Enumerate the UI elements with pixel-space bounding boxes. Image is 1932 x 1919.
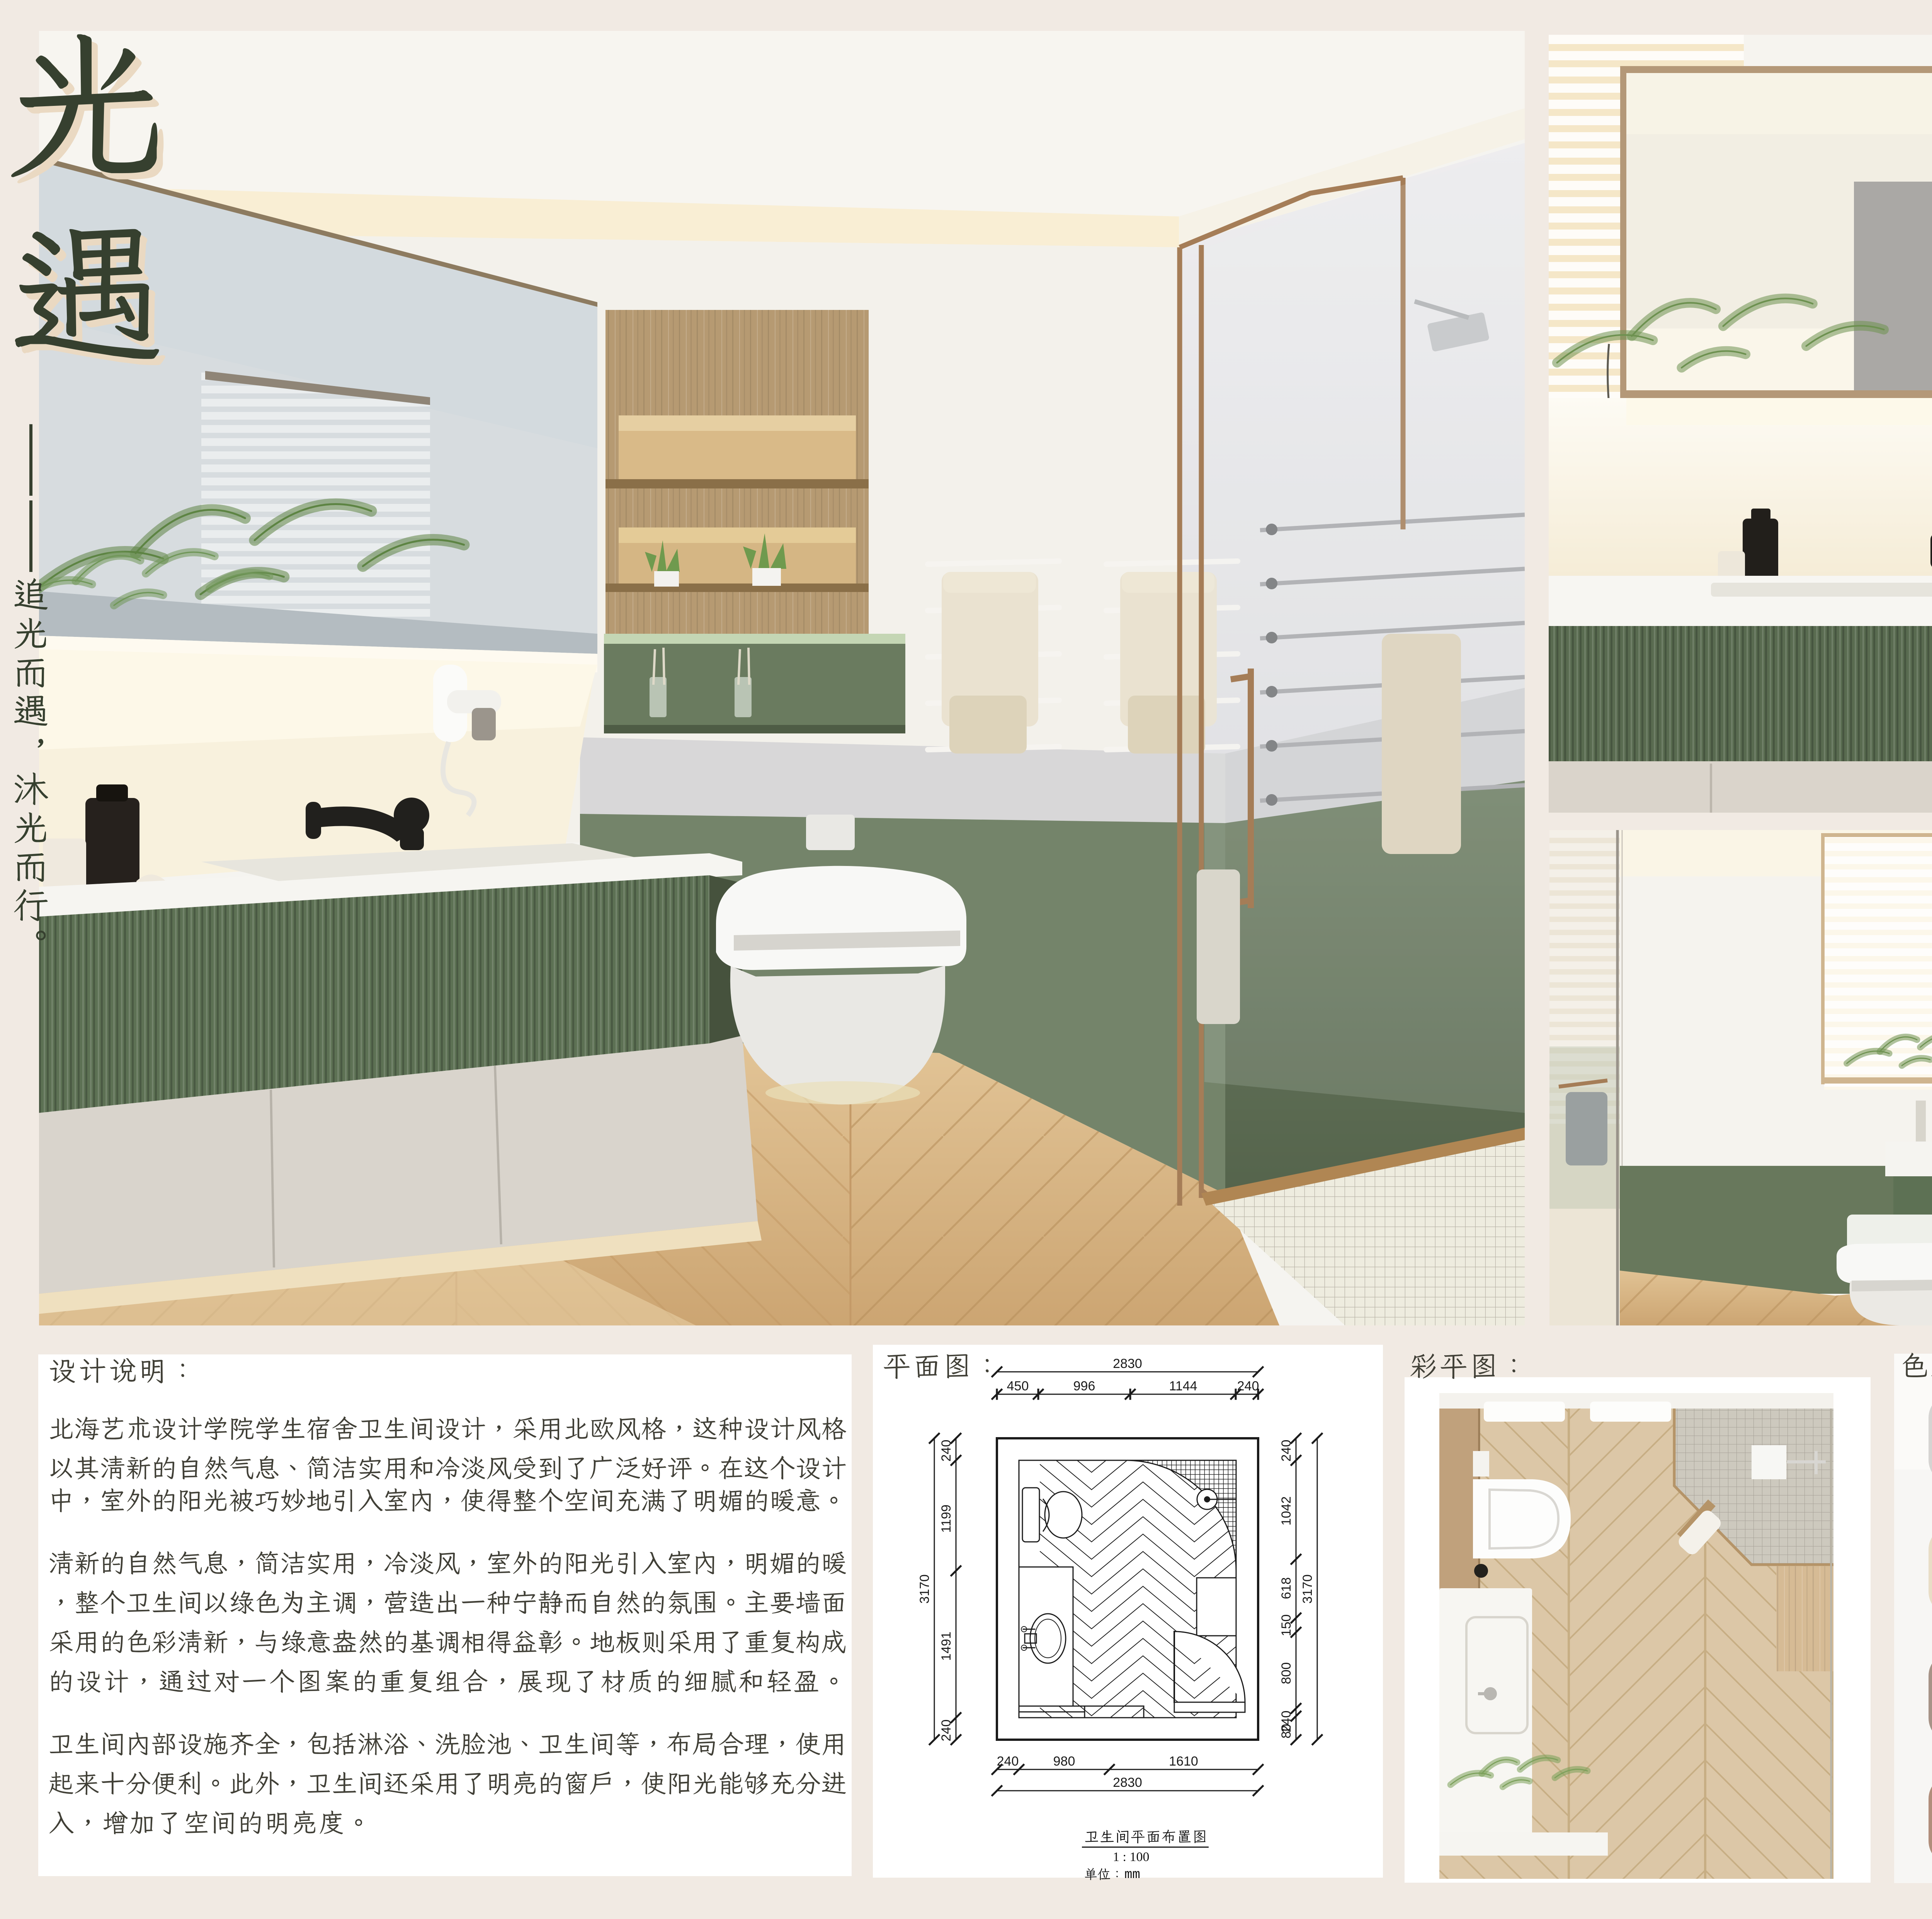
svg-text:240: 240 bbox=[939, 1720, 954, 1742]
svg-text:1144: 1144 bbox=[1169, 1379, 1197, 1393]
svg-text:3170: 3170 bbox=[1300, 1574, 1315, 1604]
svg-text:240: 240 bbox=[997, 1754, 1019, 1769]
svg-text:150: 150 bbox=[1279, 1614, 1294, 1637]
svg-text:240: 240 bbox=[1279, 1440, 1294, 1462]
svg-text:450: 450 bbox=[1007, 1379, 1029, 1393]
svg-text:1 : 100: 1 : 100 bbox=[1113, 1850, 1149, 1864]
svg-text:1042: 1042 bbox=[1279, 1496, 1294, 1526]
svg-text:1491: 1491 bbox=[939, 1631, 954, 1661]
svg-text:800: 800 bbox=[1279, 1662, 1294, 1684]
svg-text:1199: 1199 bbox=[939, 1504, 954, 1533]
svg-text:980: 980 bbox=[1053, 1754, 1075, 1769]
svg-text:80: 80 bbox=[1279, 1724, 1294, 1739]
svg-text:996: 996 bbox=[1073, 1379, 1095, 1393]
svg-text:3170: 3170 bbox=[917, 1574, 932, 1604]
svg-text:mm: mm bbox=[1124, 1868, 1140, 1882]
svg-text:2830: 2830 bbox=[1113, 1356, 1142, 1371]
svg-text:2830: 2830 bbox=[1113, 1775, 1142, 1790]
svg-text:240: 240 bbox=[939, 1440, 954, 1462]
svg-text:1610: 1610 bbox=[1169, 1754, 1198, 1769]
svg-text:240: 240 bbox=[1237, 1379, 1259, 1393]
svg-text:618: 618 bbox=[1279, 1577, 1294, 1599]
